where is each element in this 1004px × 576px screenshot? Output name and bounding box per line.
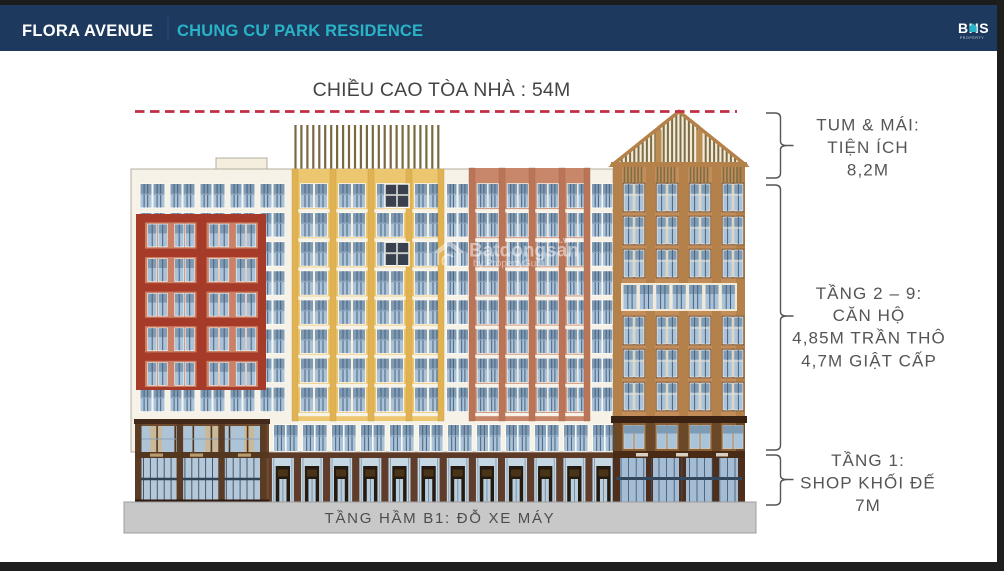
- svg-text:CHIỀU CAO TÒA NHÀ : 54M: CHIỀU CAO TÒA NHÀ : 54M: [313, 78, 571, 101]
- svg-text:CHUNG CƯ PARK RESIDENCE: CHUNG CƯ PARK RESIDENCE: [177, 22, 423, 40]
- svg-text:.com.vn: .com.vn: [538, 235, 574, 246]
- svg-text:TUM & MÁI:: TUM & MÁI:: [816, 116, 920, 135]
- svg-text:FLORA AVENUE: FLORA AVENUE: [22, 22, 153, 40]
- svg-text:4,85M TRẦN THÔ: 4,85M TRẦN THÔ: [792, 329, 946, 348]
- svg-text:by PropertyGuru: by PropertyGuru: [473, 259, 545, 270]
- svg-text:TIỆN ÍCH: TIỆN ÍCH: [827, 138, 909, 157]
- svg-text:TẦNG 1:: TẦNG 1:: [831, 451, 905, 470]
- svg-text:TẦNG HẦM B1: ĐỖ XE MÁY: TẦNG HẦM B1: ĐỖ XE MÁY: [325, 509, 556, 527]
- svg-text:PROPERTY: PROPERTY: [960, 36, 985, 40]
- svg-text:SHOP KHỐI ĐẾ: SHOP KHỐI ĐẾ: [800, 473, 936, 493]
- svg-text:7M: 7M: [855, 496, 881, 515]
- svg-text:4,7M GIẬT CẤP: 4,7M GIẬT CẤP: [801, 352, 937, 371]
- svg-text:CĂN HỘ: CĂN HỘ: [833, 306, 906, 325]
- svg-text:TẦNG 2 – 9:: TẦNG 2 – 9:: [816, 284, 923, 303]
- svg-text:8,2M: 8,2M: [847, 161, 889, 180]
